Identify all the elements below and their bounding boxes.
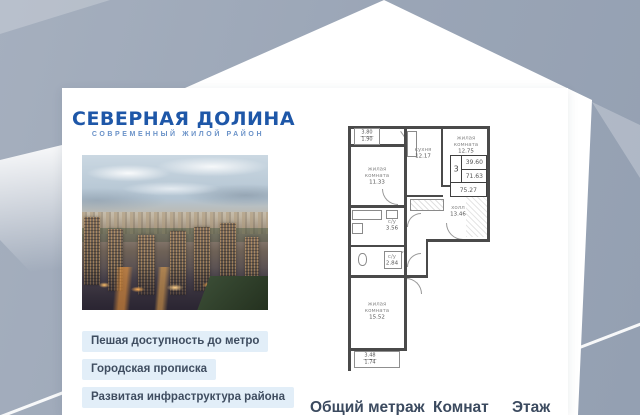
feature-badge-metro: Пешая доступность до метро: [82, 331, 268, 352]
plan-arc: [446, 223, 463, 240]
feature-badge-infrastructure: Развитая инфраструктура района: [82, 387, 294, 408]
balcony-bottom-label: 3.48 1.74: [363, 353, 376, 366]
plan-w: [348, 275, 428, 278]
plan-fx: [352, 223, 363, 234]
plan-w: [404, 278, 407, 351]
room-label-bathroom-2: с/у2.84: [376, 253, 409, 266]
floor-label: Этаж: [512, 399, 550, 415]
plan-w: [404, 195, 443, 197]
plan-w: [428, 239, 490, 242]
feature-badge-registration: Городская прописка: [82, 359, 216, 380]
summary-table: 3 39.60 71.63 75.27: [450, 155, 487, 197]
summary-living-area: 39.60: [462, 156, 486, 169]
plan-w: [441, 126, 443, 187]
total-area-label: Общий метраж: [310, 399, 425, 415]
balcony-bottom: [354, 351, 400, 368]
plan-fx: [410, 199, 444, 211]
floor-plan: 3.80 1.90 3.48 1.74 жилая комната11.33 к…: [346, 123, 494, 373]
plan-arc: [407, 213, 421, 227]
summary-total-area: 75.27: [451, 183, 486, 197]
summary-rooms-count: 3: [451, 156, 462, 183]
room-label-living-3: жилая комната15.52: [361, 301, 394, 321]
rooms-label: Комнат: [433, 399, 489, 415]
plan-fx: [358, 253, 367, 266]
plan-w: [404, 126, 407, 205]
plan-arc: [382, 189, 398, 205]
plan-w: [426, 239, 428, 278]
room-label-bathroom-1: с/у3.56: [376, 218, 409, 231]
plan-arc: [407, 253, 421, 267]
brand-logo: СЕВЕРНАЯ ДОЛИНА: [72, 108, 284, 130]
room-label-living-2: жилая комната12.75: [450, 135, 483, 155]
promo-card: СЕВЕРНАЯ ДОЛИНА СОВРЕМЕННЫЙ ЖИЛОЙ РАЙОН …: [62, 88, 568, 415]
brand-tagline: СОВРЕМЕННЫЙ ЖИЛОЙ РАЙОН: [72, 131, 284, 138]
room-label-kitchen: кухня12.17: [407, 146, 440, 159]
plan-w: [348, 245, 407, 247]
summary-mid-area: 71.63: [462, 169, 486, 183]
district-photo: [82, 155, 268, 310]
room-label-living-1: жилая комната11.33: [361, 166, 394, 186]
plan-arc: [406, 278, 422, 294]
plan-w: [487, 126, 490, 242]
photo-sky-clouds: [82, 155, 268, 220]
balcony-top-label: 3.80 1.90: [360, 130, 373, 143]
plan-w: [348, 205, 407, 208]
room-label-hall: холл13.46: [442, 204, 475, 217]
plan-w: [404, 205, 407, 278]
plan-w: [348, 126, 351, 371]
